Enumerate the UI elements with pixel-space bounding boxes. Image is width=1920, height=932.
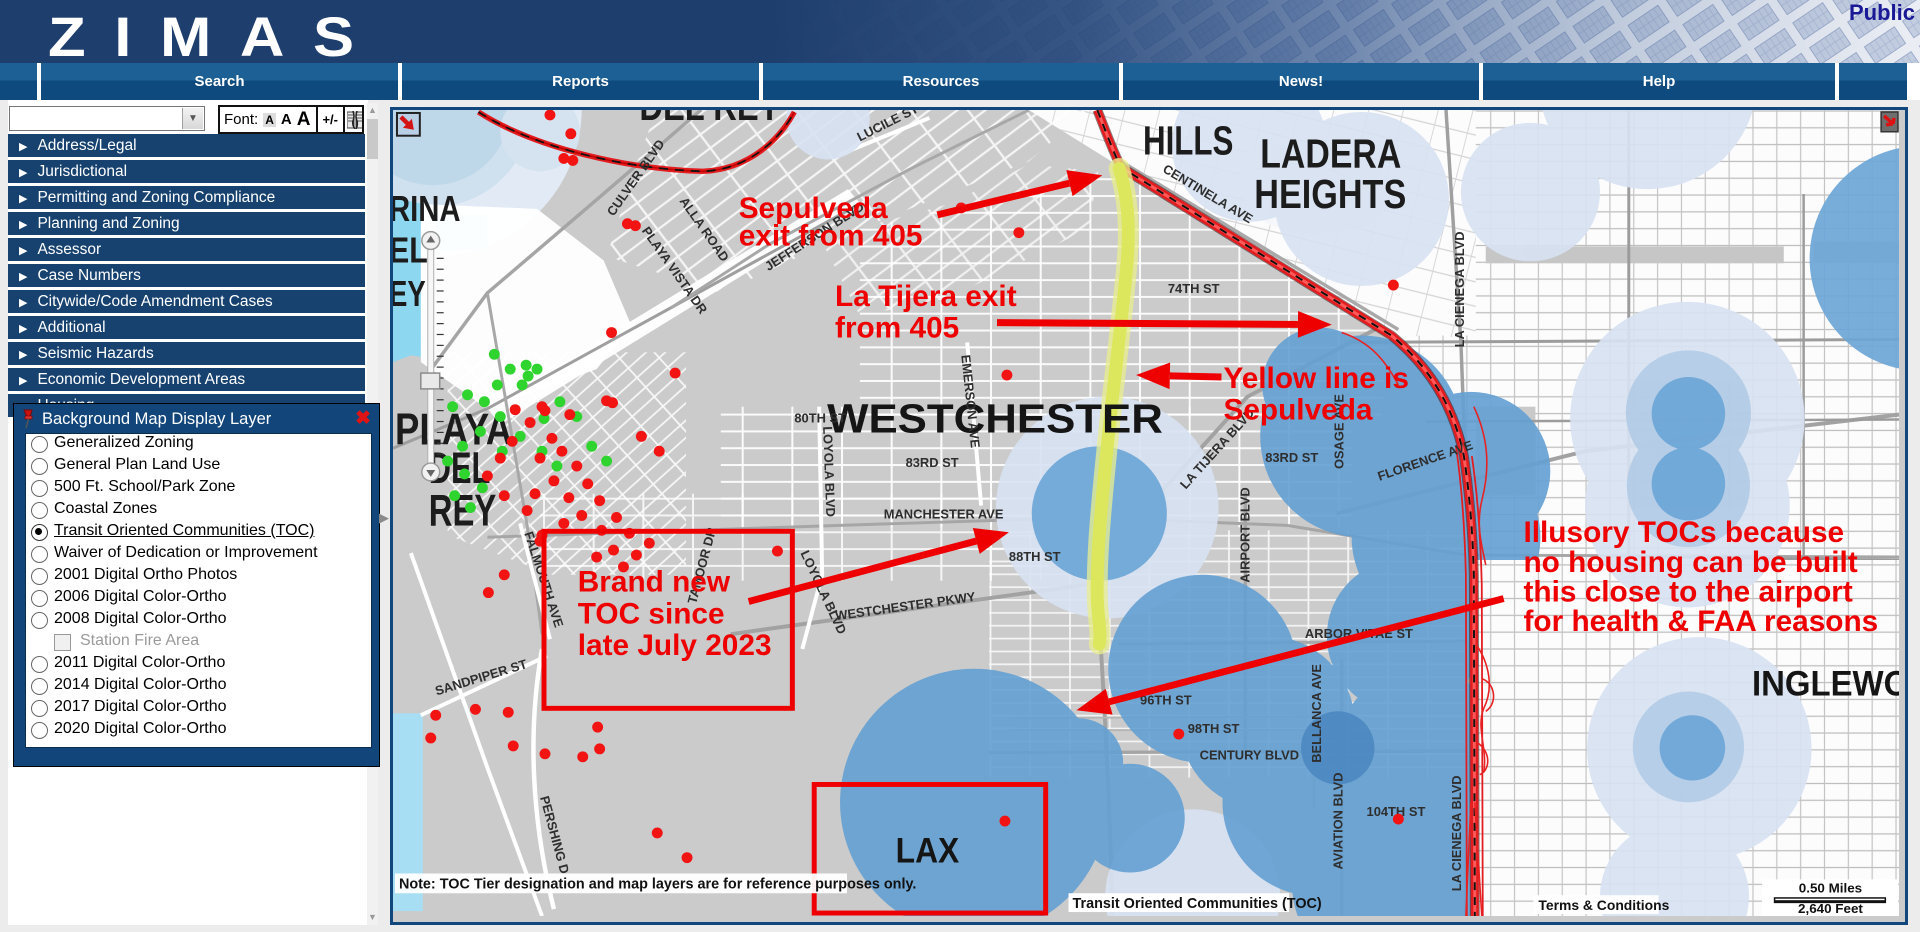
svg-text:late July 2023: late July 2023	[578, 629, 772, 662]
svg-text:83RD ST: 83RD ST	[906, 455, 959, 470]
svg-text:AVIATION BLVD: AVIATION BLVD	[1331, 772, 1346, 869]
svg-text:88TH ST: 88TH ST	[1009, 549, 1061, 564]
svg-text:for health & FAA reasons: for health & FAA reasons	[1523, 605, 1878, 638]
svg-text:LAX: LAX	[896, 831, 960, 871]
svg-text:83RD ST: 83RD ST	[1265, 450, 1318, 465]
svg-text:LOYOLA BLVD: LOYOLA BLVD	[820, 426, 838, 517]
svg-text:98TH ST: 98TH ST	[1188, 721, 1240, 736]
svg-text:Note: TOC Tier designation and: Note: TOC Tier designation and map layer…	[399, 876, 916, 892]
svg-text:this close to the airport: this close to the airport	[1523, 576, 1852, 609]
svg-text:CENTURY BLVD: CENTURY BLVD	[1200, 748, 1299, 763]
svg-text:Yellow line is: Yellow line is	[1223, 362, 1408, 395]
svg-text:Transit Oriented Communities (: Transit Oriented Communities (TOC)	[1072, 896, 1321, 912]
svg-text:LA CIENEGA BLVD: LA CIENEGA BLVD	[1449, 775, 1464, 891]
svg-text:EY: EY	[393, 273, 426, 314]
svg-text:2,640 Feet: 2,640 Feet	[1798, 901, 1863, 916]
svg-text:80TH ST: 80TH ST	[794, 411, 846, 426]
svg-text:BELLANCA AVE: BELLANCA AVE	[1309, 664, 1324, 763]
svg-text:Sepulveda: Sepulveda	[1223, 394, 1372, 427]
svg-text:INGLEWOOD: INGLEWOOD	[1752, 664, 1899, 704]
svg-text:exit from 405: exit from 405	[739, 220, 923, 253]
svg-text:from 405: from 405	[835, 312, 959, 345]
svg-text:MANCHESTER AVE: MANCHESTER AVE	[884, 506, 1004, 521]
svg-text:Illusory TOCs because: Illusory TOCs because	[1523, 516, 1844, 549]
svg-text:RINA: RINA	[393, 188, 461, 229]
svg-text:74TH ST: 74TH ST	[1168, 281, 1220, 296]
svg-text:La Tijera exit: La Tijera exit	[835, 280, 1017, 313]
svg-text:Brand new: Brand new	[578, 566, 731, 599]
svg-text:0.50 Miles: 0.50 Miles	[1799, 880, 1862, 895]
svg-text:HEIGHTS: HEIGHTS	[1254, 171, 1406, 217]
svg-text:Terms & Conditions: Terms & Conditions	[1538, 897, 1669, 913]
svg-text:HILLS: HILLS	[1143, 118, 1233, 164]
svg-text:LADERA: LADERA	[1260, 130, 1401, 176]
svg-text:LA CIENEGA BLVD: LA CIENEGA BLVD	[1452, 231, 1467, 347]
svg-text:DEL REY: DEL REY	[639, 110, 780, 129]
svg-text:TOC since: TOC since	[578, 597, 725, 630]
svg-text:AIRPORT BLVD: AIRPORT BLVD	[1237, 487, 1252, 582]
svg-text:WESTCHESTER: WESTCHESTER	[827, 395, 1163, 441]
svg-text:REY: REY	[429, 486, 497, 535]
svg-text:no housing can be built: no housing can be built	[1523, 546, 1857, 579]
